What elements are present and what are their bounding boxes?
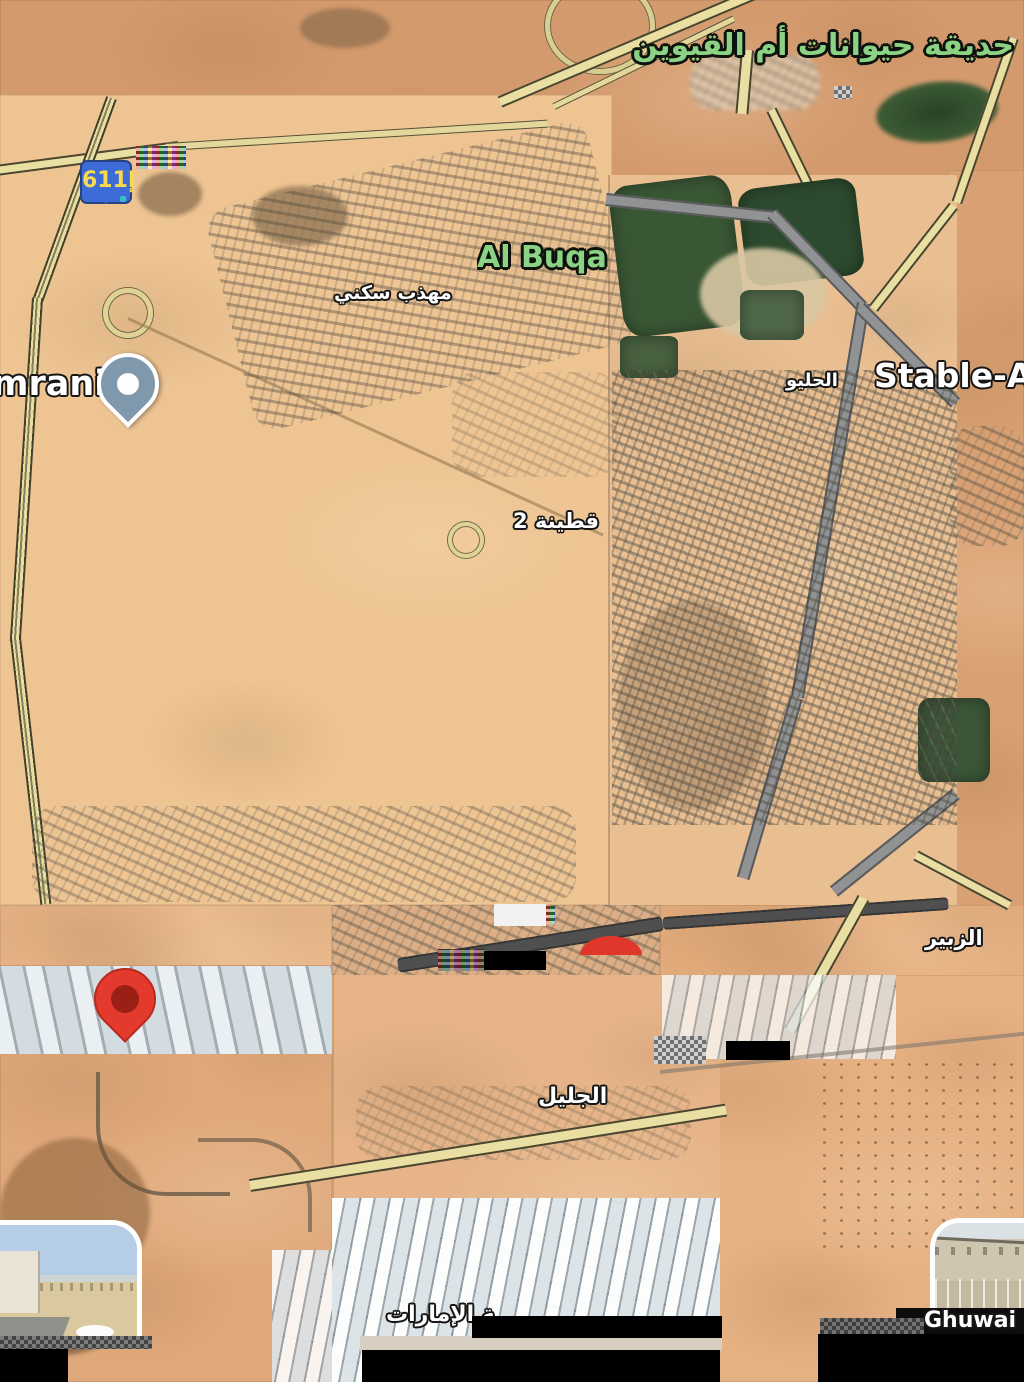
- roundabout: [103, 288, 153, 338]
- map-label-al-zubair: الزبير: [925, 926, 983, 950]
- industrial-lots-texture: [0, 966, 332, 1054]
- pin-core: [117, 373, 139, 395]
- pin-core: [111, 985, 139, 1013]
- pixel-artifact: [0, 1336, 152, 1349]
- village-patch: [690, 55, 820, 110]
- roundabout: [448, 522, 484, 558]
- farm-patch: [740, 290, 804, 340]
- map-viewport[interactable]: حديقة حيوانات أم القيوين Al Buqa مهذب سك…: [0, 0, 1024, 1382]
- map-label-al-haliyo: الحليو: [786, 370, 838, 391]
- settlement-texture: [950, 426, 1024, 546]
- pixel-artifact: [438, 949, 486, 971]
- tan-strip-artifact: [360, 1336, 722, 1351]
- satellite-panel-right-strip: [948, 170, 1024, 935]
- map-label-residential: مهذب سكني: [334, 282, 452, 304]
- transit-dot-icon: [120, 196, 126, 202]
- photo-caption-text: Ghuwai: [924, 1308, 1016, 1333]
- redaction-bar: [726, 1041, 790, 1060]
- map-label-stable: Stable-Ar: [874, 356, 1024, 395]
- building-in-photo: [0, 1251, 40, 1313]
- warehouse-grid-texture: [272, 1250, 336, 1382]
- fence-in-photo: [40, 1283, 135, 1291]
- pixel-artifact: [546, 906, 555, 924]
- fence-in-photo: [935, 1279, 1024, 1309]
- red-marker-icon[interactable]: [92, 968, 158, 1040]
- windows-in-photo: [935, 1247, 1024, 1255]
- white-patch-artifact: [494, 904, 546, 926]
- map-label-qutainah: قطينة 2: [513, 509, 599, 533]
- location-pin-icon[interactable]: [97, 353, 159, 429]
- map-label-al-jalil: الجليل: [538, 1084, 607, 1109]
- settlement-texture: [32, 806, 576, 902]
- pixel-artifact: [136, 146, 186, 169]
- redaction-bar: [472, 1316, 722, 1338]
- pin-body: [81, 955, 169, 1043]
- terrain-blotch: [300, 8, 390, 48]
- redaction-bar: [362, 1350, 720, 1382]
- settlement-texture: [452, 372, 617, 477]
- redaction-bar: [484, 951, 546, 970]
- pixel-artifact: [654, 1036, 706, 1064]
- redaction-bar: [818, 1334, 1024, 1382]
- pin-body: [84, 340, 172, 428]
- streetview-thumbnail-left[interactable]: [0, 1220, 142, 1339]
- redaction-bar: [0, 1349, 68, 1382]
- pixel-artifact: [834, 86, 852, 99]
- map-label-al-buqa: Al Buqa: [477, 240, 614, 275]
- pixel-artifact: [820, 1318, 924, 1335]
- map-label-mrani: mrani: [0, 364, 106, 404]
- terrain-blotch: [138, 172, 202, 216]
- map-label-zoo: حديقة حيوانات أم القيوين: [598, 28, 1014, 63]
- route-611-label: 611إ: [82, 168, 135, 193]
- terrain-blotch: [618, 600, 768, 810]
